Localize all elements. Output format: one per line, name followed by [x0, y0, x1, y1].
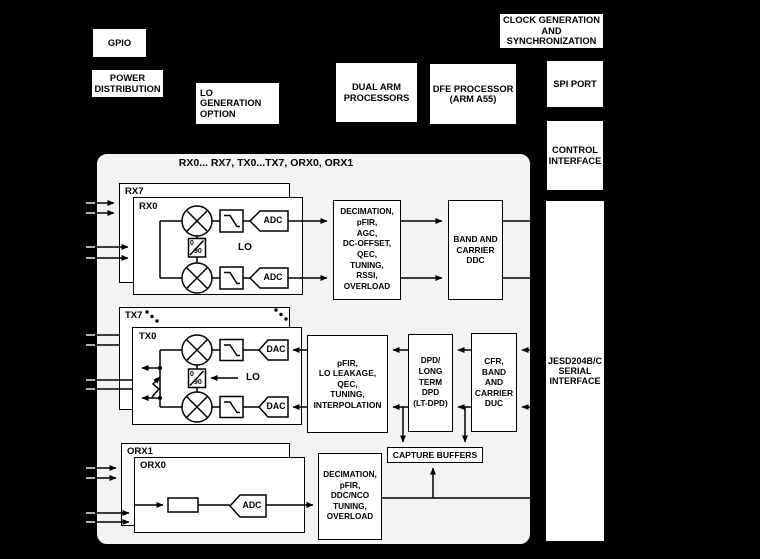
orx0-label: ORX0	[140, 460, 166, 471]
orx-adc-label: ADC	[236, 501, 268, 510]
tx-dac-label-top: DAC	[262, 345, 290, 354]
tx-lo-label: LO	[241, 373, 265, 383]
tx-phase-90-label: 90	[194, 379, 202, 386]
tx-dpd-block: DPD/ LONG TERM DPD (LT-DPD)	[408, 334, 453, 432]
dual-arm-processors-block: DUAL ARM PROCESSORS	[336, 63, 417, 122]
orx1-label: ORX1	[127, 446, 153, 457]
transceiver-block-diagram: GPIO POWER DISTRIBUTION LO GENERATION OP…	[0, 0, 760, 559]
chip-title: RX0... RX7, TX0...TX7, ORX0, ORX1	[86, 157, 446, 169]
rx-adc-label-bottom: ADC	[256, 273, 290, 282]
tx-dsp-block: pFIR, LO LEAKAGE, QEC, TUNING, INTERPOLA…	[307, 335, 388, 433]
rx-lo-label: LO	[232, 243, 258, 253]
orx-dsp-block: DECIMATION, pFIR, DDC/NCO TUNING, OVERLO…	[318, 453, 382, 540]
tx-dac-label-bottom: DAC	[262, 402, 290, 411]
rx-dsp-block: DECIMATION, pFIR, AGC, DC-OFFSET, QEC, T…	[333, 200, 401, 300]
jesd-serial-interface-block: JESD204B/C SERIAL INTERFACE	[546, 201, 604, 541]
capture-buffers-block: CAPTURE BUFFERS	[387, 447, 483, 463]
rx-phase-90-label: 90	[194, 248, 202, 255]
chip-pin-stubs	[86, 203, 95, 522]
gpio-block: GPIO	[93, 29, 146, 57]
control-interface-block: CONTROL INTERFACE	[547, 121, 603, 190]
rx-band-carrier-ddc-block: BAND AND CARRIER DDC	[448, 200, 503, 300]
power-distribution-block: POWER DISTRIBUTION	[92, 70, 163, 97]
rx-phase-0-label: 0	[190, 240, 194, 247]
dfe-processor-block: DFE PROCESSOR (ARM A55)	[430, 64, 516, 124]
spi-port-block: SPI PORT	[547, 61, 603, 107]
lo-generation-block: LO GENERATION OPTION	[196, 83, 279, 124]
rx-adc-label-top: ADC	[256, 216, 290, 225]
rx7-label: RX7	[125, 186, 143, 197]
tx7-label: TX7	[125, 310, 142, 321]
tx-cfr-duc-block: CFR, BAND AND CARRIER DUC	[471, 333, 517, 432]
tx0-label: TX0	[139, 331, 156, 342]
tx-phase-0-label: 0	[190, 371, 194, 378]
clock-generation-block: CLOCK GENERATION AND SYNCHRONIZATION	[500, 14, 603, 48]
rx0-label: RX0	[139, 201, 157, 212]
